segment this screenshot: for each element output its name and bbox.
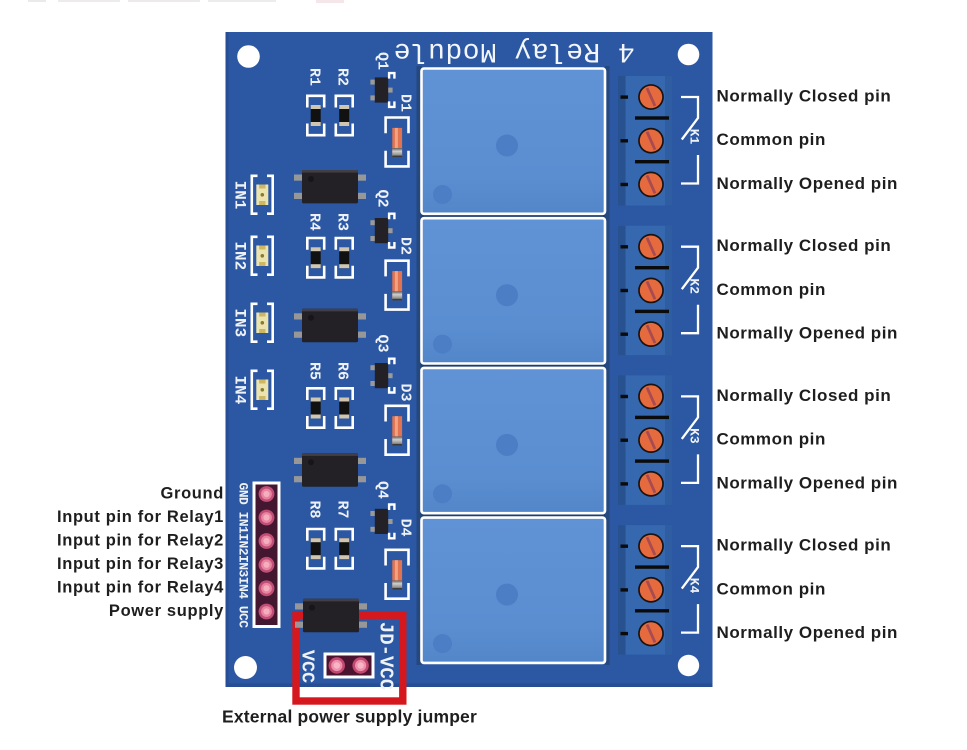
svg-text:R6: R6 — [333, 362, 350, 380]
svg-text:D3: D3 — [396, 383, 413, 401]
svg-text:IN2: IN2 — [230, 241, 248, 270]
svg-text:Input pin for Relay1: Input pin for Relay1 — [57, 508, 224, 526]
svg-text:Normally Closed pin: Normally Closed pin — [717, 386, 892, 405]
svg-text:K1: K1 — [686, 129, 701, 145]
svg-text:D1: D1 — [396, 94, 413, 112]
svg-text:Normally Closed pin: Normally Closed pin — [717, 87, 892, 106]
svg-text:IN1: IN1 — [230, 181, 248, 210]
svg-text:K3: K3 — [686, 428, 701, 444]
svg-text:Normally Closed pin: Normally Closed pin — [717, 236, 892, 255]
svg-text:Common pin: Common pin — [717, 579, 826, 598]
svg-text:Normally Opened pin: Normally Opened pin — [717, 623, 898, 642]
svg-text:Input pin for Relay2: Input pin for Relay2 — [57, 532, 224, 550]
svg-text:K4: K4 — [686, 578, 701, 594]
svg-text:Normally Opened pin: Normally Opened pin — [717, 473, 898, 492]
svg-text:Power supply: Power supply — [109, 602, 224, 620]
svg-text:D4: D4 — [396, 519, 413, 537]
svg-text:R7: R7 — [333, 500, 350, 518]
svg-text:Input pin for Relay3: Input pin for Relay3 — [57, 555, 224, 573]
svg-text:R2: R2 — [333, 68, 350, 86]
svg-text:K2: K2 — [686, 278, 701, 294]
svg-text:Common pin: Common pin — [717, 130, 826, 149]
svg-text:Ground: Ground — [161, 485, 224, 503]
svg-text:Common pin: Common pin — [717, 280, 826, 299]
svg-text:Q4: Q4 — [373, 481, 390, 499]
svg-text:Q2: Q2 — [373, 189, 390, 207]
svg-text:D2: D2 — [396, 237, 413, 255]
svg-text:Normally Closed pin: Normally Closed pin — [717, 536, 892, 555]
svg-text:Normally Opened pin: Normally Opened pin — [717, 174, 898, 193]
svg-text:R8: R8 — [305, 500, 322, 518]
svg-text:R5: R5 — [305, 362, 322, 380]
svg-text:IN4: IN4 — [230, 375, 248, 404]
svg-text:IN3: IN3 — [230, 308, 248, 337]
svg-text:4 Relay Module: 4 Relay Module — [393, 35, 635, 66]
svg-text:Q3: Q3 — [373, 334, 390, 352]
svg-text:Q1: Q1 — [373, 52, 390, 70]
svg-text:VCC: VCC — [297, 650, 318, 683]
svg-text:JD-VCC: JD-VCC — [374, 622, 396, 690]
svg-text:Common pin: Common pin — [717, 430, 826, 449]
svg-text:GND IN1IN2IN3IN4 UCC: GND IN1IN2IN3IN4 UCC — [235, 482, 250, 628]
svg-text:R4: R4 — [305, 213, 322, 231]
svg-text:R1: R1 — [305, 68, 322, 86]
svg-text:R3: R3 — [333, 213, 350, 231]
svg-text:External power supply jumper: External power supply jumper — [222, 707, 477, 727]
svg-text:Input pin for Relay4: Input pin for Relay4 — [57, 579, 224, 597]
svg-text:Normally Opened pin: Normally Opened pin — [717, 324, 898, 343]
